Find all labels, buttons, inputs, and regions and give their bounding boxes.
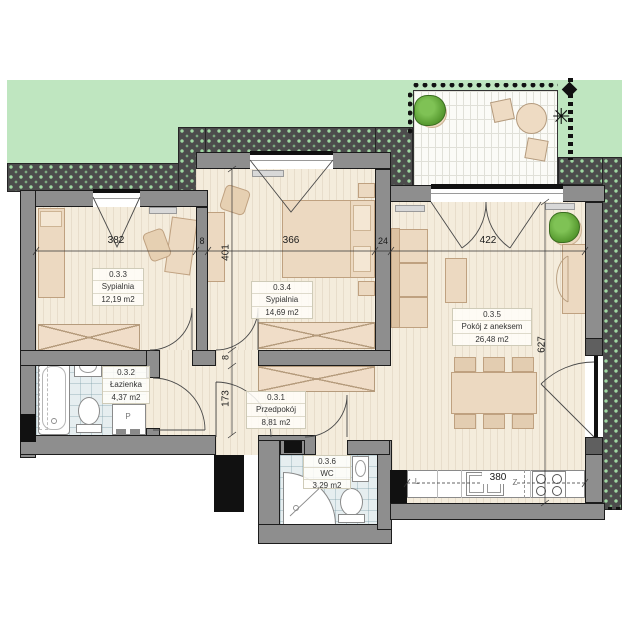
terrace-french-door-glass: [431, 184, 563, 189]
wall-wc-bottom: [258, 524, 392, 544]
wall-bottom-left-a: [20, 435, 216, 455]
dim-living-height: 627: [536, 327, 549, 363]
dining-chair: [483, 357, 505, 372]
room-name: Sypialnia: [93, 281, 143, 293]
room-id: 0.3.6: [304, 456, 350, 468]
wall-post: [585, 437, 603, 455]
window-bedroom1-glass: [93, 189, 140, 193]
washer-knob: [130, 429, 140, 434]
burner: [536, 474, 546, 484]
dining-table: [451, 372, 537, 414]
sofa-cushion: [399, 297, 428, 328]
terrace-french-door-frame: [431, 193, 563, 194]
dim-hall-height: 173: [220, 383, 233, 415]
room-id: 0.3.3: [93, 269, 143, 281]
wardrobe: [38, 324, 140, 351]
terrace-table: [516, 103, 547, 134]
room-id: 0.3.4: [252, 282, 312, 294]
room-id: 0.3.2: [103, 367, 149, 379]
sink-label: Z: [509, 477, 521, 488]
nightstand: [358, 281, 375, 296]
dim-living-width: 422: [468, 234, 508, 247]
fridge-label: L: [411, 476, 423, 487]
room-name: Pokój z aneksem: [453, 321, 531, 333]
hedge-top-left: [7, 163, 180, 192]
room-area: 3,29 m2: [304, 480, 350, 491]
wardrobe: [258, 322, 375, 349]
wc-toilet-tank: [338, 514, 365, 523]
pillar-hallway: [214, 455, 244, 512]
terrace-border-top: [412, 83, 558, 90]
bed-pillow: [40, 211, 62, 227]
burner: [552, 474, 562, 484]
room-name: Sypialnia: [252, 294, 312, 306]
pillar-bathroom-corner: [20, 414, 36, 442]
room-area: 14,69 m2: [252, 307, 312, 318]
dim-wall-c: 8: [220, 348, 233, 368]
window-bedroom2-glass: [250, 151, 333, 155]
wc-sink-basin: [355, 460, 366, 477]
window-bedroom1-frame: [93, 198, 140, 199]
dining-chair: [454, 357, 476, 372]
counter-divider: [437, 470, 438, 498]
room-label-bathroom: 0.3.2 Łazienka 4,37 m2: [102, 366, 150, 404]
dining-chair: [454, 414, 476, 429]
room-label-wc: 0.3.6 WC 3,29 m2: [303, 455, 351, 489]
room-name: Łazienka: [103, 379, 149, 391]
coffee-table: [445, 258, 467, 303]
dim-wall-a: 8: [196, 235, 208, 248]
room-label-living: 0.3.5 Pokój z aneksem 26,48 m2: [452, 308, 532, 346]
nightstand: [358, 183, 375, 198]
sofa-cushion: [399, 229, 428, 263]
room-label-hallway: 0.3.1 Przedpokój 8,81 m2: [246, 391, 306, 429]
boundary-plant-icon: ✳: [552, 104, 570, 130]
terrace-chair: [490, 98, 515, 123]
floor-plan: ✳: [0, 0, 622, 626]
garden-door-glass: [594, 356, 598, 437]
room-area: 4,37 m2: [103, 392, 149, 403]
dining-chair: [512, 414, 534, 429]
dim-bedroom2-width: 366: [271, 234, 311, 247]
bed-pillow: [353, 205, 371, 231]
wall-post: [585, 338, 603, 356]
room-label-bedroom1: 0.3.3 Sypialnia 12,19 m2: [92, 268, 144, 306]
counter-dashed: [524, 470, 525, 498]
wall-hall-top-b: [192, 350, 216, 366]
wc-threshold: [284, 441, 302, 453]
dim-bedroom1-width: 382: [96, 234, 136, 247]
toilet-tank: [76, 424, 102, 433]
toilet-bowl: [78, 397, 100, 425]
room-name: WC: [304, 468, 350, 480]
room-id: 0.3.5: [453, 309, 531, 321]
burner: [552, 486, 562, 496]
wall-hall-top-c: [258, 350, 391, 366]
shower-curtain: [39, 364, 48, 430]
washer-knob: [116, 429, 126, 434]
radiator: [252, 170, 284, 177]
room-area: 8,81 m2: [247, 417, 305, 428]
bed-pillow: [353, 246, 371, 272]
radiator: [149, 207, 177, 214]
wall-bottom-right: [390, 503, 605, 520]
sofa-cushion: [399, 263, 428, 297]
room-id: 0.3.1: [247, 392, 305, 404]
counter-divider: [530, 470, 531, 498]
wall-hall-top-a: [20, 350, 150, 366]
dim-wall-b: 24: [373, 235, 393, 248]
hall-wardrobe: [258, 366, 375, 392]
room-area: 26,48 m2: [453, 334, 531, 345]
washer-label: P: [121, 411, 135, 422]
room-area: 12,19 m2: [93, 294, 143, 305]
wall-bedroom2-living: [375, 169, 391, 352]
terrace-chair: [524, 137, 548, 161]
radiator: [395, 205, 425, 212]
radiator: [545, 203, 575, 210]
room-name: Przedpokój: [247, 404, 305, 416]
bed-line: [350, 201, 351, 277]
wall-right-upper: [585, 202, 603, 356]
wc-toilet-bowl: [340, 488, 363, 516]
burner: [536, 486, 546, 496]
hedge-right-side: [602, 157, 622, 510]
dining-chair: [483, 414, 505, 429]
room-label-bedroom2: 0.3.4 Sypialnia 14,69 m2: [251, 281, 313, 319]
wall-wc-top-b: [347, 440, 390, 455]
pillar-kitchen: [390, 470, 407, 503]
dim-bedroom2-height: 401: [220, 237, 233, 269]
counter-divider: [461, 470, 462, 498]
window-bedroom2-frame: [250, 160, 333, 161]
dining-chair: [512, 357, 534, 372]
wall-bedroom-divider: [196, 207, 208, 354]
